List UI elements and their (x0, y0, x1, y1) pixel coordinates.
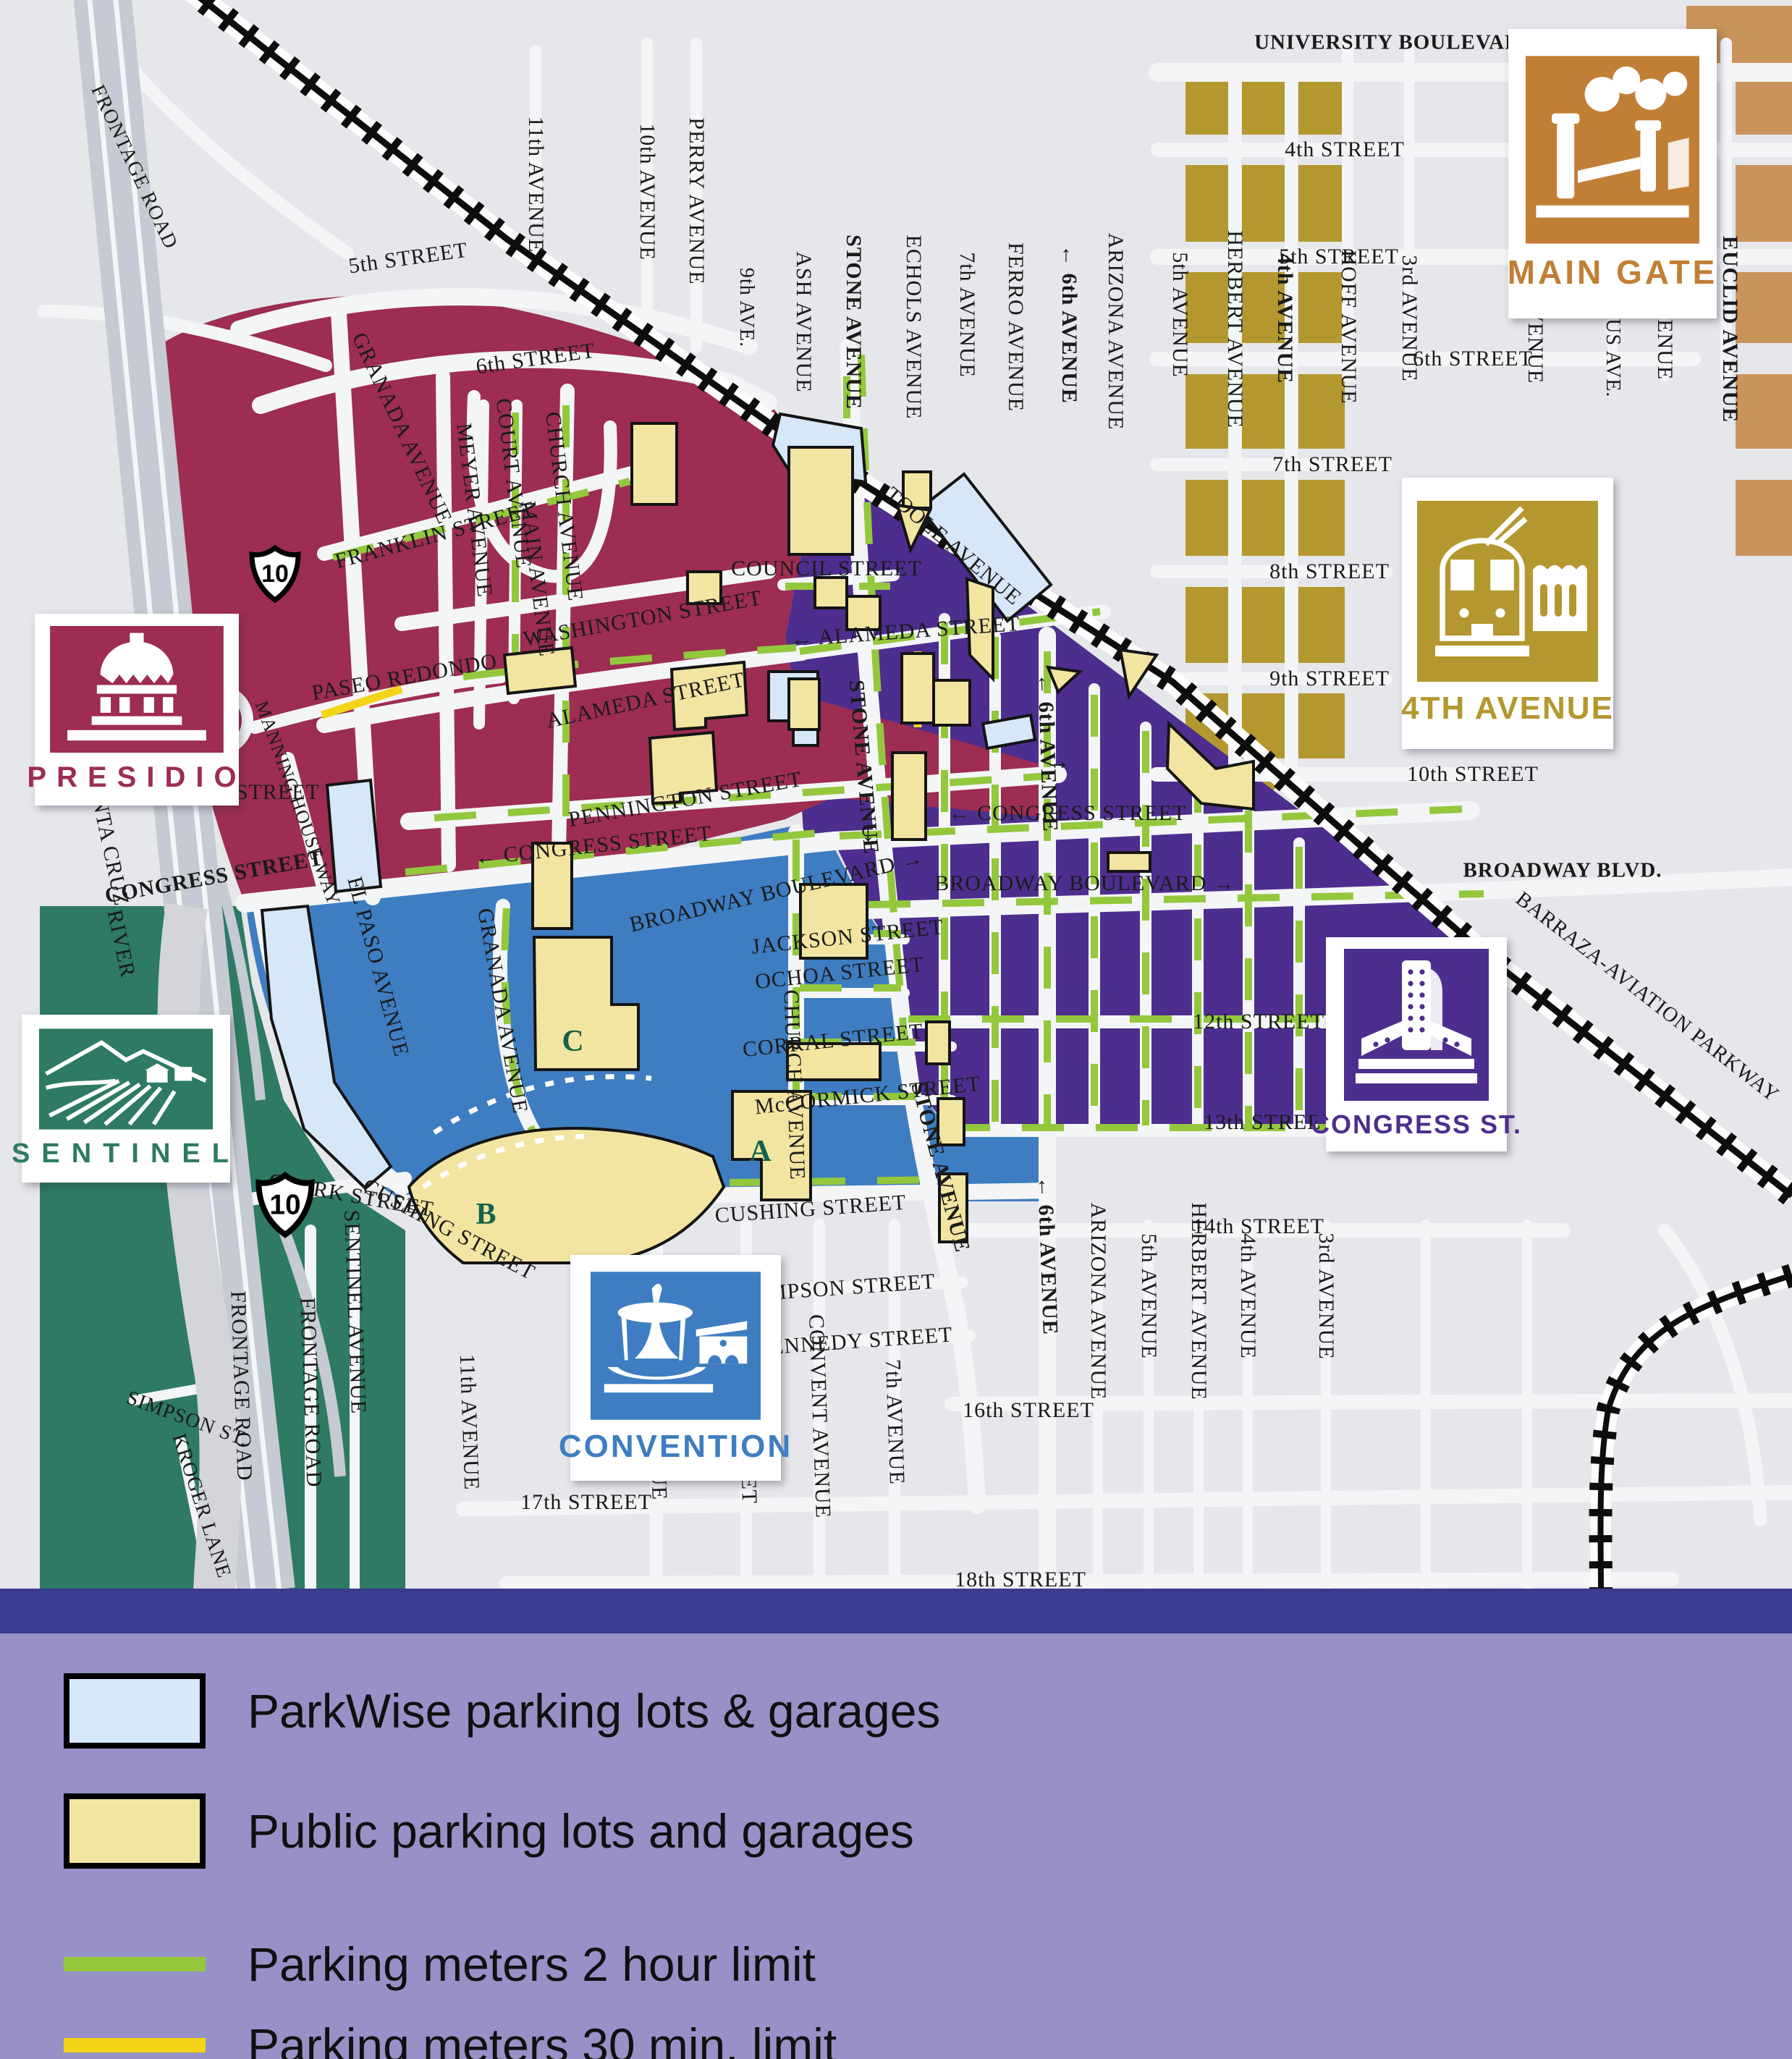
street-label: A (749, 1136, 772, 1167)
street-label: STONE AVENUE (842, 234, 864, 410)
street-label: 4th AVENUE (1274, 253, 1296, 384)
street-label: 4th STREET (1285, 139, 1405, 161)
street-label: 7th AVENUE (882, 1359, 908, 1486)
street-label: ECHOLS AVENUE (903, 235, 924, 420)
main-gate-icon (1526, 56, 1699, 244)
presidio-dome-icon (50, 626, 224, 753)
sentinel-district-logo: SENTINEL (22, 1015, 230, 1183)
street-label: BROADWAY BLVD. (1463, 861, 1662, 881)
street-label: 8th STREET (1269, 561, 1390, 583)
legend-top-strip (0, 1589, 1792, 1633)
sentinel-mountain-icon (39, 1028, 213, 1130)
presidio-district-logo: PRESIDIO (35, 614, 239, 806)
street-label: HOFF AVENUE (1337, 250, 1359, 405)
legend-item-parkwise: ParkWise parking lots & garages (64, 1673, 940, 1749)
street-label: ← CONGRESS STREET (949, 803, 1187, 824)
street-label: 9th STREET (1269, 668, 1390, 690)
street-label: UNIVERSITY BOULEVARD (1254, 33, 1537, 54)
street-label: B (476, 1199, 496, 1230)
street-label: 10th AVENUE (636, 123, 658, 261)
fourth-avenue-logo-label: 4TH AVENUE (1401, 690, 1614, 727)
legend-item-public: Public parking lots and garages (64, 1793, 914, 1869)
street-label: COUNCIL STREET (731, 558, 922, 580)
fourth-avenue-trolley-icon (1417, 501, 1598, 682)
street-label: HERBERT AVENUE (1188, 1202, 1209, 1400)
fourth-avenue-district-logo: 4TH AVENUE (1402, 478, 1613, 749)
street-label: FRONTAGE ROAD (227, 1290, 255, 1481)
street-label: C (562, 1026, 584, 1057)
street-label: 6th STREET (1413, 348, 1533, 370)
street-label: 12th STREET (1193, 1011, 1324, 1033)
street-label: ↓ (862, 819, 876, 845)
street-label: 9th AVE. (736, 268, 756, 347)
meter-2hr-swatch (64, 1957, 206, 1971)
street-label: ARIZONA AVENUE (1104, 233, 1126, 431)
parking-map: UNIVERSITY BOULEVARD4th STREET5th STREET… (0, 0, 1792, 2059)
main-gate-logo-label: MAIN GATE (1508, 253, 1718, 292)
street-label: HERBERT AVENUE (1224, 230, 1246, 428)
legend-item-meter-2hr: Parking meters 2 hour limit (64, 1937, 816, 1992)
street-label: BROADWAY BOULEVARD → (934, 873, 1235, 895)
street-label: 7th STREET (1272, 454, 1392, 475)
street-label: 17th STREET (520, 1492, 652, 1513)
presidio-logo-label: PRESIDIO (27, 761, 246, 794)
street-label: 11th AVENUE (525, 117, 546, 253)
street-label: 10th STREET (1407, 764, 1539, 785)
street-label: FERRO AVENUE (1005, 242, 1026, 412)
street-label: ASH AVENUE (793, 251, 814, 392)
legend-label: Public parking lots and garages (248, 1804, 914, 1859)
street-label: 5th AVENUE (1169, 252, 1191, 378)
public-lot-swatch (64, 1793, 206, 1869)
svg-text:10: 10 (269, 1189, 300, 1220)
street-label: 3rd AVENUE (1398, 255, 1420, 381)
street-label: PERRY AVENUE (685, 117, 707, 284)
svg-text:10: 10 (261, 560, 289, 588)
sentinel-logo-label: SENTINEL (12, 1138, 240, 1170)
interstate-10-shield: 10 (246, 544, 304, 605)
interstate-10-shield: 10 (252, 1171, 318, 1240)
congress-st-building-icon (1344, 949, 1489, 1101)
street-label: 4th AVENUE (1237, 1233, 1259, 1359)
legend-label: ParkWise parking lots & garages (248, 1683, 940, 1738)
street-label: ← 6th AVENUE (1034, 673, 1061, 833)
meter-30min-swatch (64, 2038, 206, 2052)
street-label: 5th AVENUE (1138, 1233, 1159, 1359)
street-label: CHURCH AVENUE (779, 989, 808, 1180)
main-gate-district-logo: MAIN GATE (1508, 29, 1717, 318)
street-label: FRONTAGE ROAD (296, 1297, 324, 1488)
street-label: 3rd AVENUE (1315, 1233, 1337, 1359)
convention-fountain-icon (591, 1272, 761, 1420)
congress-st-logo-label: CONGRESS ST. (1311, 1109, 1522, 1140)
street-label: 16th STREET (963, 1400, 1094, 1421)
street-label: 11th AVENUE (456, 1353, 483, 1490)
convention-logo-label: CONVENTION (559, 1429, 793, 1465)
legend-label: Parking meters 30 min. limit (248, 2018, 837, 2059)
convention-district-logo: CONVENTION (570, 1255, 781, 1481)
street-label: 7th AVENUE (956, 252, 978, 378)
street-label: ← 6th AVENUE (1034, 1176, 1061, 1336)
legend-label: Parking meters 2 hour limit (248, 1937, 816, 1992)
parkwise-swatch (64, 1673, 206, 1749)
street-label: ← 6th AVENUE (1058, 245, 1080, 404)
street-label: 18th STREET (955, 1569, 1086, 1591)
congress-st-district-logo: CONGRESS ST. (1326, 937, 1507, 1151)
street-label: EUCLID AVENUE (1719, 236, 1741, 423)
legend-item-meter-30min: Parking meters 30 min. limit (64, 2018, 837, 2059)
street-label: ARIZONA AVENUE (1087, 1203, 1109, 1400)
